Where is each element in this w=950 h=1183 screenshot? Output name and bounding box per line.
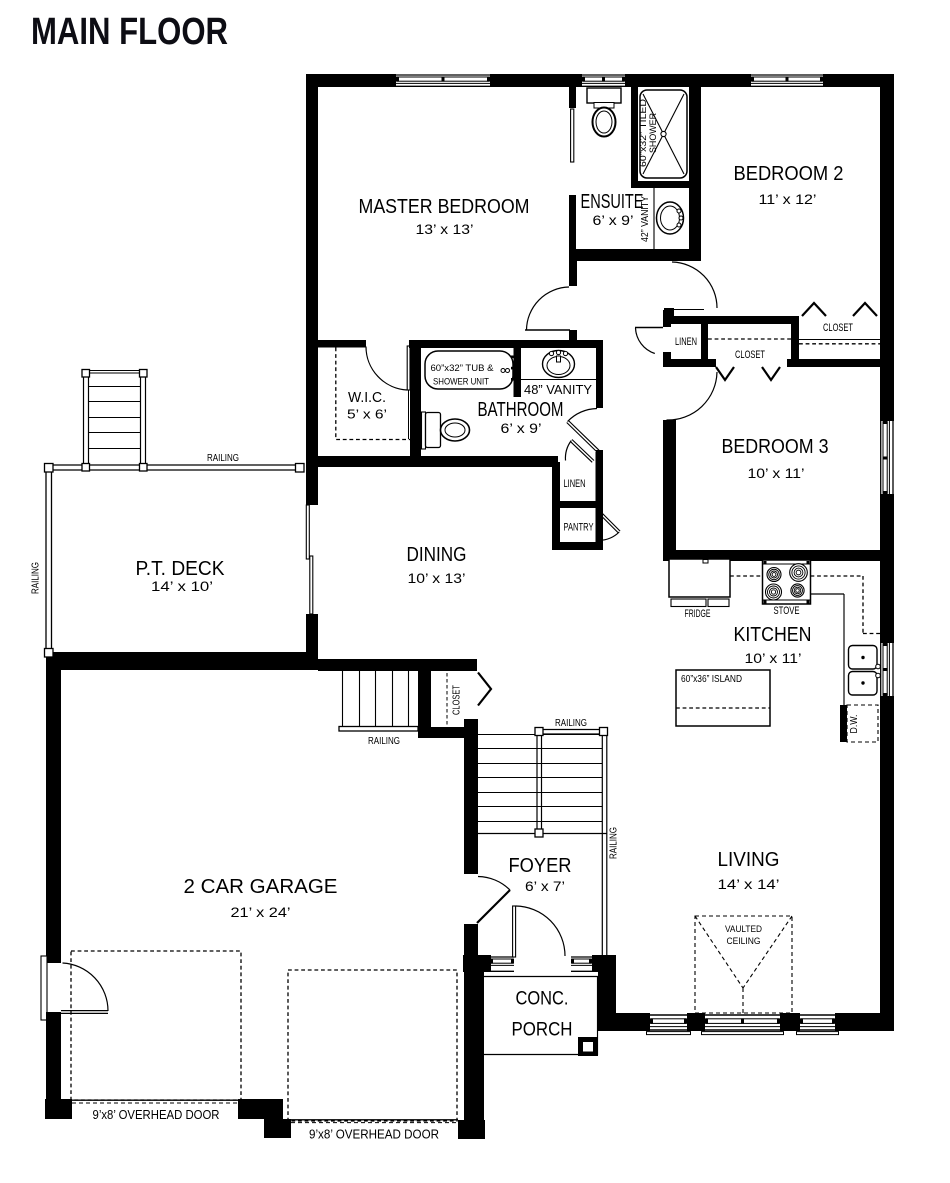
svg-text:60”x32” TUB &: 60”x32” TUB &	[431, 363, 495, 374]
svg-text:SHOWER UNIT: SHOWER UNIT	[433, 377, 489, 388]
svg-text:RAILING: RAILING	[30, 562, 42, 594]
svg-text:MAIN FLOOR: MAIN FLOOR	[31, 11, 228, 53]
svg-text:RAILING: RAILING	[368, 735, 400, 747]
svg-text:9’x8’ OVERHEAD DOOR: 9’x8’ OVERHEAD DOOR	[93, 1107, 220, 1122]
svg-text:5’ x 6’: 5’ x 6’	[347, 407, 387, 422]
svg-text:48” VANITY: 48” VANITY	[524, 382, 592, 397]
svg-text:LIVING: LIVING	[718, 849, 780, 871]
svg-text:10’ x 11’: 10’ x 11’	[745, 651, 802, 666]
svg-text:14’ x 10’: 14’ x 10’	[151, 579, 213, 594]
svg-text:LINEN: LINEN	[675, 336, 697, 348]
svg-text:6’ x 9’: 6’ x 9’	[501, 421, 542, 436]
svg-text:SHOWER: SHOWER	[648, 113, 659, 153]
svg-text:BATHROOM: BATHROOM	[478, 399, 564, 421]
svg-text:13’ x 13’: 13’ x 13’	[416, 222, 474, 237]
svg-text:W.I.C.: W.I.C.	[348, 389, 386, 406]
svg-text:60”x36” ISLAND: 60”x36” ISLAND	[681, 674, 742, 685]
svg-text:2 CAR GARAGE: 2 CAR GARAGE	[184, 876, 338, 898]
svg-text:RAILING: RAILING	[207, 452, 239, 464]
svg-text:6’ x 7’: 6’ x 7’	[525, 879, 565, 894]
svg-text:KITCHEN: KITCHEN	[734, 624, 812, 646]
svg-text:10’ x 11’: 10’ x 11’	[748, 466, 805, 481]
svg-text:CEILING: CEILING	[727, 936, 761, 947]
svg-text:6’ x 9’: 6’ x 9’	[593, 213, 634, 228]
svg-text:RAILING: RAILING	[608, 827, 620, 859]
svg-text:STOVE: STOVE	[774, 605, 800, 617]
svg-text:D.W.: D.W.	[848, 715, 860, 734]
svg-text:P.T. DECK: P.T. DECK	[136, 558, 226, 580]
svg-text:9’x8’ OVERHEAD DOOR: 9’x8’ OVERHEAD DOOR	[309, 1127, 439, 1142]
svg-text:LINEN: LINEN	[564, 478, 586, 490]
svg-text:PORCH: PORCH	[512, 1019, 573, 1041]
svg-text:CLOSET: CLOSET	[452, 685, 463, 715]
svg-text:11’ x 12’: 11’ x 12’	[759, 192, 817, 207]
svg-text:FOYER: FOYER	[509, 855, 572, 877]
svg-text:10’ x 13’: 10’ x 13’	[408, 571, 466, 586]
svg-text:BEDROOM 3: BEDROOM 3	[722, 436, 829, 458]
svg-text:MASTER BEDROOM: MASTER BEDROOM	[359, 196, 530, 218]
svg-text:FRIDGE: FRIDGE	[685, 608, 711, 620]
svg-text:ENSUITE: ENSUITE	[581, 191, 644, 213]
svg-text:VAULTED: VAULTED	[725, 924, 762, 935]
svg-text:BEDROOM 2: BEDROOM 2	[734, 163, 844, 185]
svg-text:21’ x 24’: 21’ x 24’	[231, 905, 291, 920]
svg-text:PANTRY: PANTRY	[564, 522, 594, 534]
svg-text:CLOSET: CLOSET	[823, 322, 853, 334]
svg-text:14’ x 14’: 14’ x 14’	[718, 877, 780, 892]
svg-text:DINING: DINING	[407, 544, 467, 566]
svg-text:CONC.: CONC.	[516, 988, 569, 1010]
svg-text:RAILING: RAILING	[555, 717, 587, 729]
svg-text:CLOSET: CLOSET	[735, 349, 765, 361]
